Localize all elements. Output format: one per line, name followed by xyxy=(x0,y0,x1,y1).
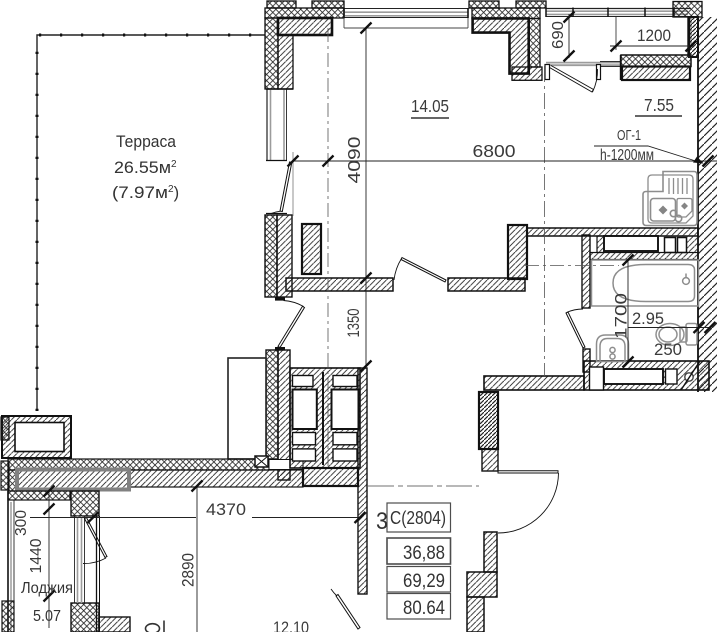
svg-text:300: 300 xyxy=(13,510,30,536)
svg-text:1350: 1350 xyxy=(345,309,363,338)
svg-text:С(2804): С(2804) xyxy=(390,507,446,528)
svg-text:4090: 4090 xyxy=(344,136,364,183)
svg-text:1440: 1440 xyxy=(28,538,45,573)
svg-text:690: 690 xyxy=(550,21,567,49)
svg-text:6800: 6800 xyxy=(473,141,516,161)
svg-text:4370: 4370 xyxy=(206,500,246,519)
svg-text:ОГ-1: ОГ-1 xyxy=(617,127,641,144)
svg-text:3: 3 xyxy=(376,508,388,535)
svg-text:h-1200мм: h-1200мм xyxy=(600,147,654,164)
svg-text:14.05: 14.05 xyxy=(411,96,449,116)
svg-text:7.55: 7.55 xyxy=(644,95,674,115)
svg-text:5.07: 5.07 xyxy=(33,608,61,625)
svg-text:Лоджия: Лоджия xyxy=(21,580,73,597)
svg-text:80.64: 80.64 xyxy=(403,598,445,619)
svg-text:1200: 1200 xyxy=(637,26,671,45)
svg-text:26.55м2: 26.55м2 xyxy=(114,159,177,177)
svg-text:250: 250 xyxy=(654,341,682,359)
svg-text:69,29: 69,29 xyxy=(403,571,445,592)
svg-text:12.10: 12.10 xyxy=(273,619,309,632)
svg-text:2.95: 2.95 xyxy=(632,310,664,328)
svg-text:Терраса: Терраса xyxy=(116,133,177,151)
svg-text:1700: 1700 xyxy=(612,293,631,339)
svg-text:2890: 2890 xyxy=(179,553,198,587)
svg-text:36,88: 36,88 xyxy=(403,543,445,564)
